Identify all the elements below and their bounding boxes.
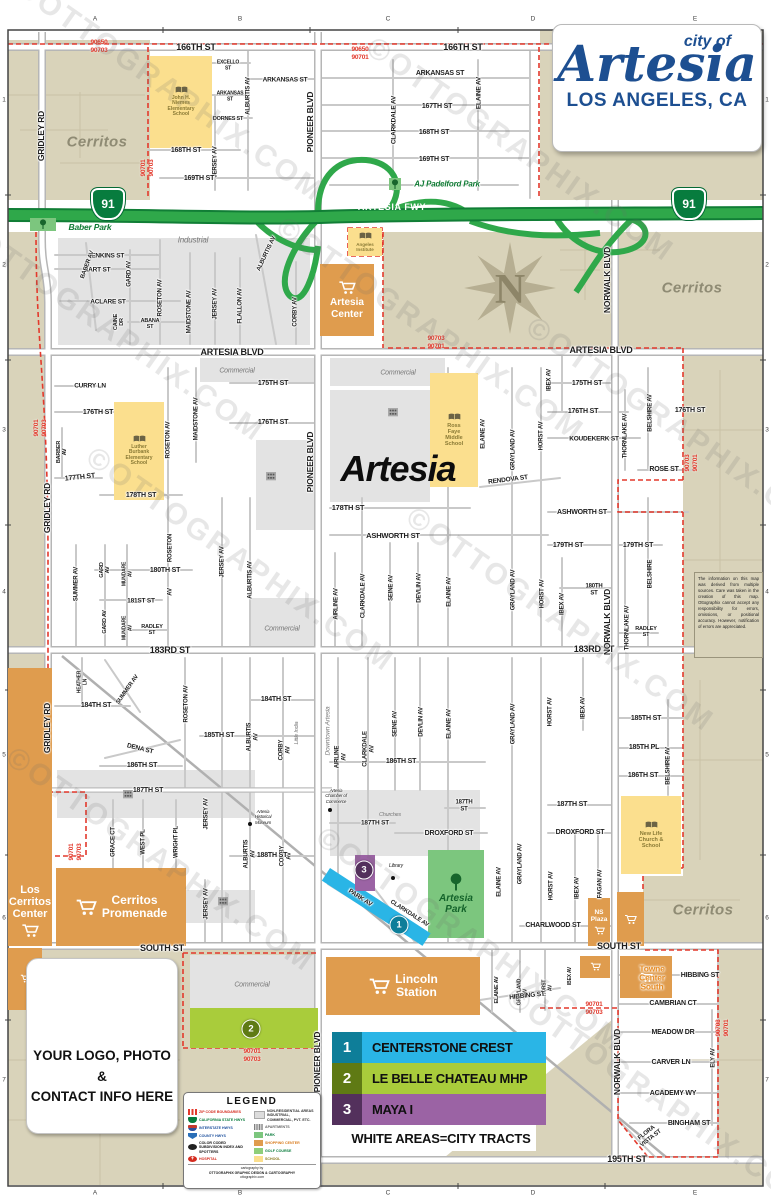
grid-column-label: B xyxy=(238,16,242,23)
grid-column-label: E xyxy=(693,16,697,23)
map-page: N John H. Niemes Elemen xyxy=(0,0,771,1200)
grid-row-label: 1 xyxy=(765,97,769,104)
basemap-svg: N xyxy=(0,0,771,1200)
grid-row-label: 5 xyxy=(765,752,769,759)
grid-column-label: D xyxy=(531,1190,536,1197)
grid-row-label: 7 xyxy=(765,1077,769,1084)
grid-row-label: 6 xyxy=(2,915,6,922)
grid-row-label: 3 xyxy=(2,427,6,434)
grid-column-label: B xyxy=(238,1190,242,1197)
svg-text:N: N xyxy=(495,267,525,313)
grid-row-label: 4 xyxy=(2,589,6,596)
grid-column-label: C xyxy=(386,16,391,23)
grid-row-label: 6 xyxy=(765,915,769,922)
grid-column-label: C xyxy=(386,1190,391,1197)
grid-column-label: A xyxy=(93,1190,97,1197)
grid-row-label: 7 xyxy=(2,1077,6,1084)
grid-column-label: A xyxy=(93,16,97,23)
grid-row-label: 1 xyxy=(2,97,6,104)
compass-rose: N xyxy=(464,242,556,334)
grid-row-label: 4 xyxy=(765,589,769,596)
grid-row-label: 2 xyxy=(765,262,769,269)
grid-column-label: D xyxy=(531,16,536,23)
grid-row-label: 5 xyxy=(2,752,6,759)
grid-column-label: E xyxy=(693,1190,697,1197)
grid-row-label: 3 xyxy=(765,427,769,434)
grid-row-label: 2 xyxy=(2,262,6,269)
